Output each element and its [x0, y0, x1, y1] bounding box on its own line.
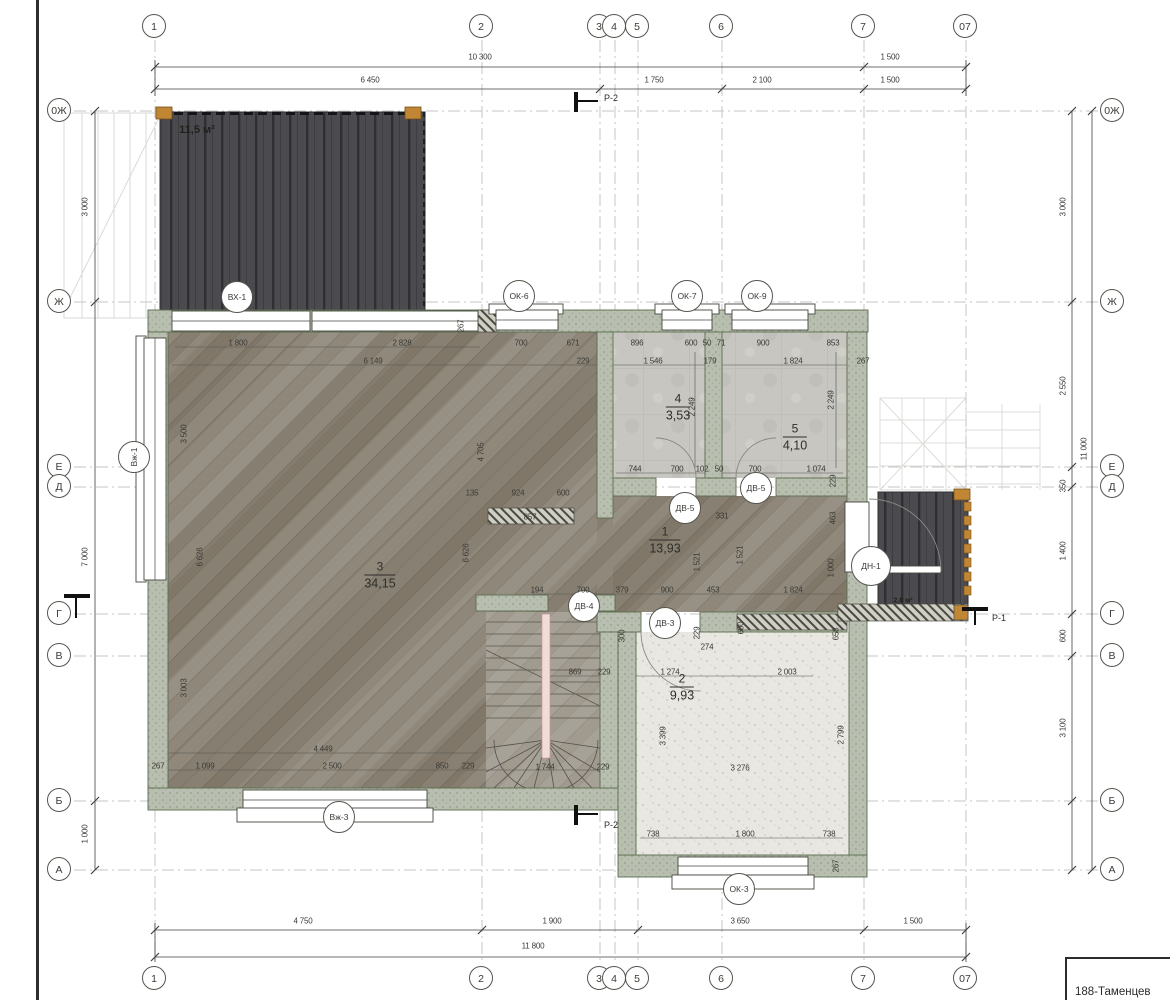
pergola-sketch	[64, 113, 160, 318]
room-4-floor	[613, 332, 705, 478]
drawing-sheet: 1234567071234567070ЖЖЕДГВБА0ЖЖЕДГВБАВХ-1…	[0, 0, 1170, 1000]
staircase	[486, 597, 600, 793]
stair-rail	[542, 614, 550, 758]
terrace-deck	[156, 107, 425, 318]
scaffold-sketch	[880, 398, 1040, 490]
title-block: 188-Таменцев	[1065, 957, 1170, 1000]
porch-deck	[878, 489, 971, 612]
room-5-floor	[722, 332, 847, 478]
floor-plan-drawing	[0, 0, 1170, 1000]
room-2-floor	[636, 632, 849, 855]
title-block-text: 188-Таменцев	[1075, 986, 1151, 998]
